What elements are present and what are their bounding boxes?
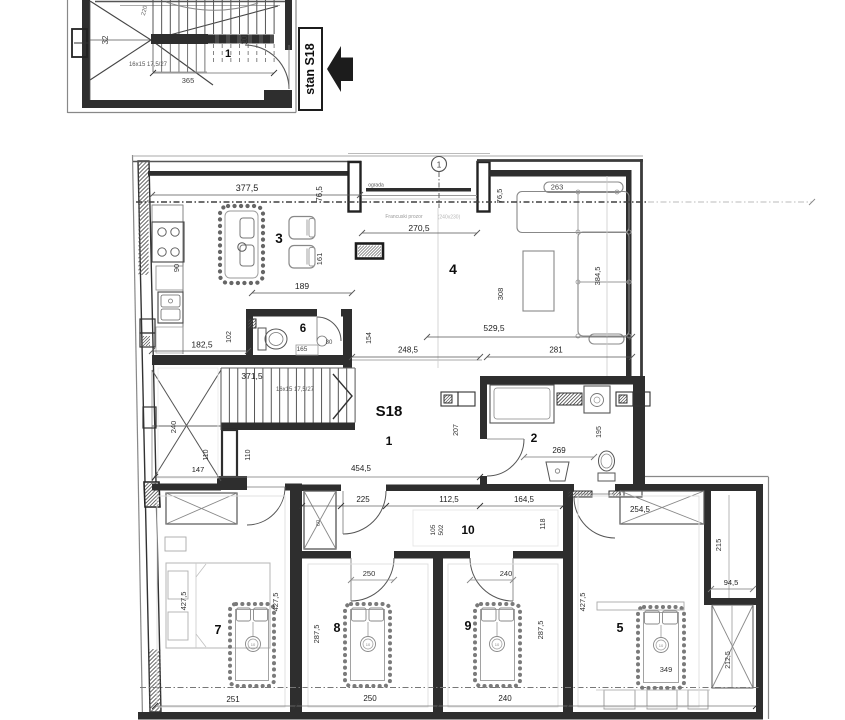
svg-text:8: 8 bbox=[334, 621, 341, 635]
svg-text:365: 365 bbox=[182, 76, 195, 85]
svg-text:112,5: 112,5 bbox=[439, 495, 459, 504]
svg-text:189: 189 bbox=[295, 281, 309, 291]
svg-text:16x15 17,5/27: 16x15 17,5/27 bbox=[276, 387, 315, 393]
svg-text:454,5: 454,5 bbox=[351, 464, 372, 473]
svg-text:384,5: 384,5 bbox=[593, 267, 602, 286]
svg-text:5: 5 bbox=[617, 621, 624, 635]
svg-text:281: 281 bbox=[549, 346, 563, 355]
svg-text:1: 1 bbox=[225, 48, 231, 60]
svg-text:118: 118 bbox=[540, 518, 547, 529]
svg-text:377,5: 377,5 bbox=[236, 183, 259, 193]
svg-text:102: 102 bbox=[226, 331, 233, 343]
svg-text:502: 502 bbox=[438, 524, 445, 535]
svg-text:270,5: 270,5 bbox=[408, 223, 430, 233]
svg-text:16x15 17,5/27: 16x15 17,5/27 bbox=[129, 62, 168, 68]
svg-text:10: 10 bbox=[659, 643, 664, 648]
svg-text:427,5: 427,5 bbox=[271, 593, 280, 612]
svg-text:10: 10 bbox=[366, 642, 371, 647]
svg-text:164,5: 164,5 bbox=[514, 495, 535, 504]
svg-text:254,5: 254,5 bbox=[630, 505, 651, 514]
svg-text:80: 80 bbox=[326, 340, 333, 346]
svg-text:32: 32 bbox=[101, 35, 110, 44]
svg-text:349: 349 bbox=[660, 665, 673, 674]
svg-text:110: 110 bbox=[245, 449, 252, 460]
svg-text:240: 240 bbox=[500, 569, 513, 578]
svg-text:3: 3 bbox=[275, 231, 283, 246]
svg-text:250: 250 bbox=[363, 694, 377, 703]
svg-text:S18: S18 bbox=[376, 403, 403, 420]
svg-text:287,5: 287,5 bbox=[312, 625, 321, 644]
svg-text:76,5: 76,5 bbox=[315, 186, 324, 202]
svg-text:76,5: 76,5 bbox=[495, 189, 504, 204]
svg-text:4: 4 bbox=[449, 261, 457, 277]
svg-text:105: 105 bbox=[430, 524, 437, 535]
svg-text:1: 1 bbox=[386, 434, 393, 448]
svg-text:207: 207 bbox=[453, 424, 460, 436]
svg-text:225: 225 bbox=[356, 495, 370, 504]
svg-text:10: 10 bbox=[495, 642, 500, 647]
svg-text:250: 250 bbox=[363, 569, 376, 578]
svg-text:90: 90 bbox=[172, 264, 181, 272]
svg-text:20: 20 bbox=[240, 35, 249, 44]
svg-text:263: 263 bbox=[551, 183, 564, 192]
svg-text:165: 165 bbox=[297, 346, 308, 353]
svg-text:94,5: 94,5 bbox=[724, 578, 739, 587]
svg-text:1: 1 bbox=[437, 160, 442, 170]
svg-text:251: 251 bbox=[226, 695, 240, 704]
svg-text:10: 10 bbox=[461, 523, 475, 537]
svg-text:10: 10 bbox=[251, 642, 256, 647]
svg-text:240: 240 bbox=[498, 694, 512, 703]
svg-text:308: 308 bbox=[496, 288, 505, 301]
svg-text:161: 161 bbox=[315, 253, 324, 266]
svg-text:ograda: ograda bbox=[368, 183, 384, 189]
svg-text:(240x230): (240x230) bbox=[438, 215, 461, 221]
svg-text:529,5: 529,5 bbox=[483, 323, 505, 333]
svg-text:240: 240 bbox=[169, 421, 178, 434]
svg-text:371,5: 371,5 bbox=[241, 371, 263, 381]
svg-text:9: 9 bbox=[465, 619, 472, 633]
svg-text:195: 195 bbox=[596, 426, 603, 438]
svg-text:154: 154 bbox=[366, 332, 373, 344]
svg-text:2: 2 bbox=[531, 431, 538, 445]
svg-text:6: 6 bbox=[300, 323, 306, 335]
svg-text:60: 60 bbox=[316, 520, 322, 526]
svg-text:182,5: 182,5 bbox=[191, 340, 213, 350]
svg-text:147: 147 bbox=[192, 465, 205, 474]
svg-text:427,5: 427,5 bbox=[179, 592, 188, 611]
svg-text:248,5: 248,5 bbox=[398, 346, 419, 355]
svg-text:7: 7 bbox=[215, 623, 222, 637]
svg-text:110: 110 bbox=[203, 449, 210, 460]
svg-text:Francuski prozor: Francuski prozor bbox=[385, 214, 423, 220]
svg-text:215: 215 bbox=[714, 539, 723, 552]
svg-text:269: 269 bbox=[552, 446, 566, 455]
svg-text:212,5: 212,5 bbox=[725, 651, 732, 669]
svg-text:287,5: 287,5 bbox=[536, 621, 545, 640]
svg-text:stan S18: stan S18 bbox=[303, 43, 317, 94]
svg-text:427,5: 427,5 bbox=[578, 593, 587, 612]
